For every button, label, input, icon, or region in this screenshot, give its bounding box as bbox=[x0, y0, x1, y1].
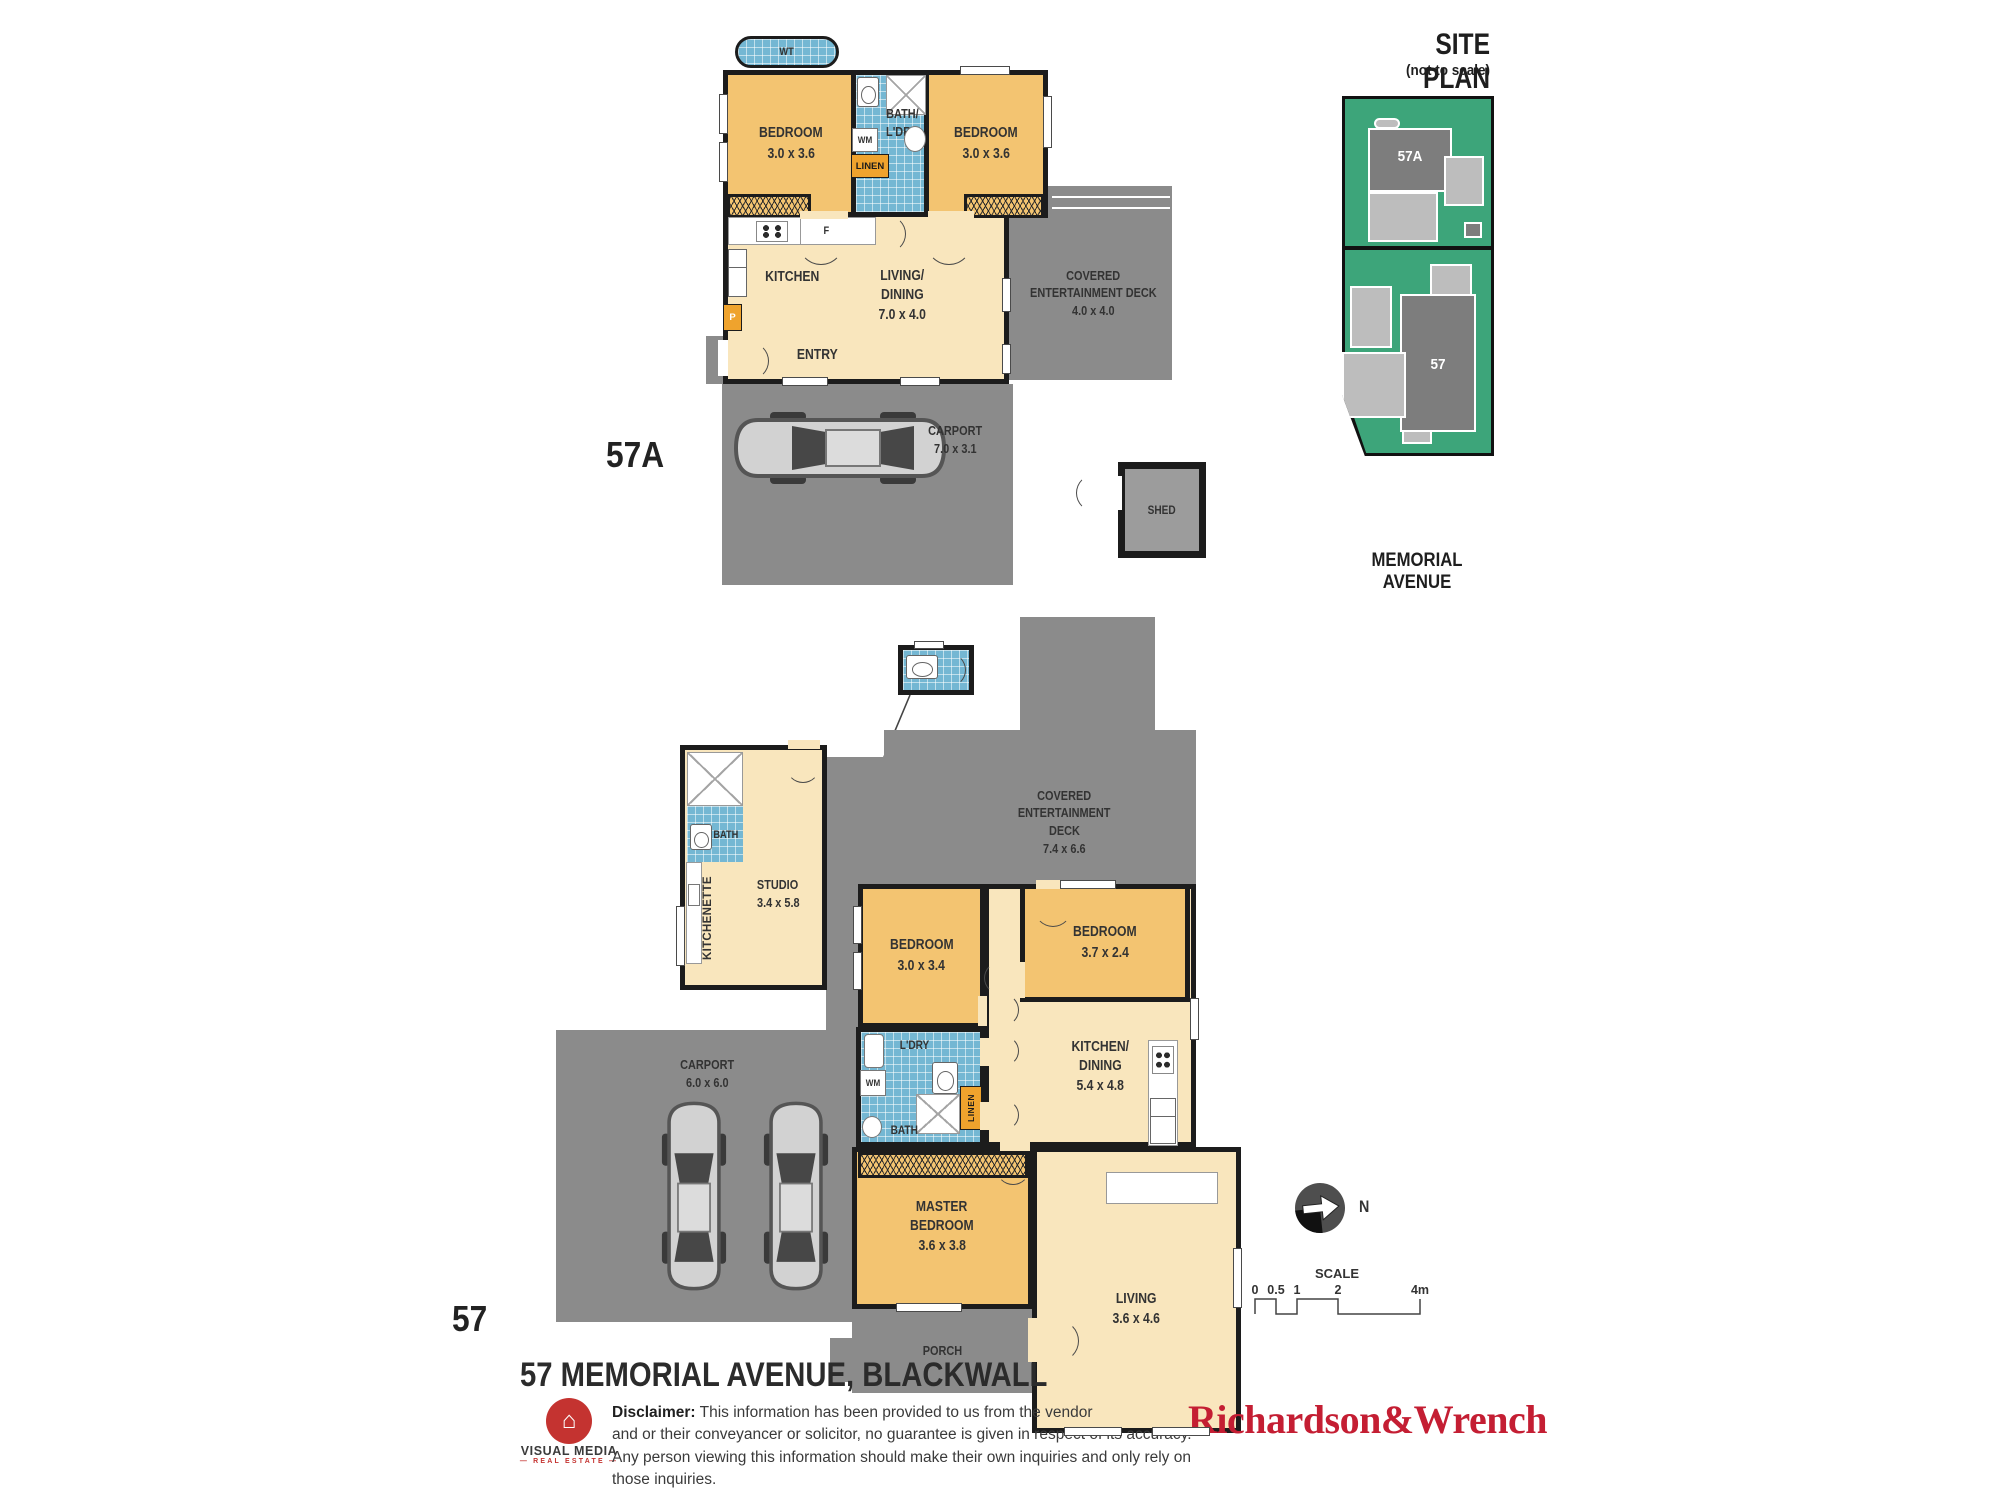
door-arc bbox=[996, 1151, 1030, 1185]
svg-text:SCALE: SCALE bbox=[1315, 1266, 1359, 1281]
door-arc bbox=[926, 219, 972, 265]
site-57-studio bbox=[1350, 286, 1392, 348]
unit-label-57a: 57A bbox=[606, 434, 664, 476]
water-tank-label: WT bbox=[780, 45, 794, 60]
pantry-unit-icon bbox=[728, 249, 747, 297]
window bbox=[719, 142, 728, 182]
deck-window bbox=[1002, 344, 1011, 374]
svg-text:2: 2 bbox=[1335, 1283, 1342, 1297]
street-label: MEMORIAL AVENUE bbox=[1346, 550, 1489, 594]
deck-label-57a: COVERED ENTERTAINMENT DECK 4.0 x 4.0 bbox=[1032, 262, 1154, 324]
deck-57-side bbox=[826, 757, 884, 884]
window bbox=[1043, 96, 1052, 148]
washing-machine-icon: WM bbox=[852, 128, 878, 152]
window bbox=[1233, 1248, 1242, 1308]
kitchenette-label: KITCHENETTE bbox=[702, 868, 714, 968]
visual-media-tagline: REAL ESTATE bbox=[516, 1458, 622, 1465]
site-57-carport bbox=[1342, 352, 1406, 418]
kitchen-peninsula-bench bbox=[1106, 1172, 1218, 1204]
cooktop-icon bbox=[756, 221, 788, 242]
north-label: N bbox=[1359, 1196, 1369, 1219]
deck-door-gap bbox=[1002, 278, 1011, 312]
site-lot-a-label: 57A bbox=[1390, 148, 1430, 165]
laundry-label: L'DRY bbox=[890, 1036, 940, 1054]
door-arc bbox=[984, 962, 1016, 994]
shower-icon bbox=[687, 752, 743, 806]
water-tank: WT bbox=[735, 36, 839, 68]
deck-label-57: COVERED ENTERTAINMENT DECK 7.4 x 6.6 bbox=[1005, 778, 1123, 866]
door-arc bbox=[868, 215, 906, 253]
door-gap bbox=[788, 740, 820, 749]
window bbox=[896, 1303, 962, 1312]
disclaimer-text: Disclaimer: This information has been pr… bbox=[612, 1402, 1202, 1492]
door-gap bbox=[1000, 1142, 1030, 1151]
site-lot-b-label: 57 bbox=[1422, 356, 1454, 373]
window bbox=[853, 906, 862, 944]
shed: SHED bbox=[1118, 462, 1206, 558]
porch-label: PORCH bbox=[910, 1342, 974, 1360]
shed-door-arc bbox=[1076, 474, 1114, 512]
visual-media-name: VISUAL MEDIA bbox=[516, 1444, 622, 1458]
window bbox=[853, 952, 862, 990]
studio-label: STUDIO 3.4 x 5.8 bbox=[742, 872, 814, 916]
window bbox=[782, 377, 828, 386]
door-arc bbox=[932, 653, 966, 687]
entry-door-gap bbox=[718, 340, 728, 376]
site-plan-lots: 57A 57 bbox=[1342, 96, 1494, 456]
kitchenette-bench bbox=[686, 862, 702, 964]
door-gap bbox=[928, 211, 974, 219]
car-icon bbox=[652, 1098, 736, 1294]
entry-door-arc bbox=[731, 342, 769, 380]
window bbox=[719, 94, 728, 134]
scale-bar: SCALE 0 0.5 1 2 4m bbox=[1240, 1262, 1440, 1322]
carport-label-57: CARPORT 6.0 x 6.0 bbox=[664, 1052, 750, 1096]
door-gap bbox=[800, 211, 848, 219]
kitchen-dining-label: KITCHEN/ DINING 5.4 x 4.8 bbox=[1040, 1034, 1160, 1100]
north-arrow-icon bbox=[1291, 1179, 1348, 1236]
window bbox=[1152, 1427, 1210, 1436]
door-arc bbox=[989, 1036, 1019, 1066]
disclaimer-label: Disclaimer: bbox=[612, 1404, 696, 1421]
visual-media-logo: ⌂ VISUAL MEDIA REAL ESTATE bbox=[516, 1398, 622, 1465]
window bbox=[676, 906, 685, 966]
agency-logo: Richardson&Wrench bbox=[1188, 1396, 1547, 1443]
svg-text:0: 0 bbox=[1252, 1283, 1259, 1297]
car-icon bbox=[754, 1098, 838, 1294]
window bbox=[1060, 880, 1116, 889]
toilet-icon bbox=[932, 1062, 958, 1094]
sink-icon bbox=[688, 884, 700, 906]
room-dims: 3.0 x 3.6 bbox=[962, 145, 1009, 165]
linen-cabinet: LINEN bbox=[960, 1086, 982, 1130]
site-57a-shed bbox=[1464, 222, 1482, 238]
living-label: LIVING 3.6 x 4.6 bbox=[1098, 1288, 1174, 1332]
cooktop-icon bbox=[1152, 1046, 1174, 1074]
entry-label: ENTRY bbox=[780, 346, 854, 366]
washing-machine-icon: WM bbox=[860, 1070, 886, 1096]
site-57-porch bbox=[1402, 430, 1432, 444]
room-dims: 3.0 x 3.6 bbox=[767, 145, 814, 165]
address-title: 57 MEMORIAL AVENUE, BLACKWALL bbox=[520, 1356, 1047, 1395]
door-arc bbox=[987, 994, 1019, 1026]
unit-label-57: 57 bbox=[452, 1298, 487, 1340]
linen-cabinet: LINEN bbox=[851, 154, 889, 178]
lot-divider bbox=[1342, 246, 1494, 250]
laundry-tub-icon bbox=[864, 1034, 884, 1068]
svg-text:0.5: 0.5 bbox=[1267, 1283, 1284, 1297]
door-gap bbox=[980, 1102, 989, 1130]
window bbox=[1190, 998, 1199, 1040]
carport-label-57a: CARPORT 7.0 x 3.1 bbox=[906, 418, 1004, 462]
robe-icon bbox=[964, 194, 1044, 218]
bedroom1-57: BEDROOM 3.0 x 3.4 bbox=[858, 884, 985, 1028]
door-gap bbox=[980, 1038, 989, 1066]
kitchen-label: KITCHEN bbox=[748, 268, 836, 288]
window bbox=[900, 377, 940, 386]
floorplan-page: WT BEDROOM 3.0 x 3.6 BEDROOM 3.0 x 3.6 B… bbox=[0, 0, 2000, 1500]
front-door-gap bbox=[1028, 1318, 1037, 1362]
door-arc bbox=[989, 1100, 1019, 1130]
window bbox=[914, 641, 944, 649]
master-label: MASTER BEDROOM 3.6 x 3.8 bbox=[884, 1194, 1000, 1260]
site-57a-carport bbox=[1368, 192, 1438, 242]
deck-roof-strip-57a bbox=[1048, 186, 1172, 222]
front-door-arc bbox=[1037, 1320, 1079, 1362]
fridge-icon bbox=[1150, 1098, 1176, 1144]
door-arc bbox=[798, 219, 844, 265]
window bbox=[1064, 1427, 1122, 1436]
deck-57-upper bbox=[1020, 617, 1155, 735]
toilet-icon bbox=[857, 77, 879, 107]
deck-roof-line bbox=[1052, 196, 1170, 198]
robe-icon bbox=[727, 194, 811, 218]
deck-roof-line bbox=[1052, 207, 1170, 209]
door-gap bbox=[1016, 962, 1025, 998]
door-arc bbox=[786, 749, 820, 783]
basin-icon bbox=[862, 1116, 882, 1138]
svg-text:4m: 4m bbox=[1411, 1283, 1429, 1297]
window bbox=[960, 66, 1010, 75]
svg-text:1: 1 bbox=[1294, 1283, 1301, 1297]
room-label: BEDROOM bbox=[759, 124, 823, 144]
room-label: BEDROOM bbox=[954, 124, 1018, 144]
pantry-cabinet: P bbox=[723, 304, 742, 331]
bath-label: BATH bbox=[884, 1122, 924, 1138]
site-plan-subtitle: (not to scale) bbox=[1359, 62, 1490, 79]
basin-icon bbox=[904, 126, 926, 152]
door-arc bbox=[1034, 889, 1072, 927]
visual-media-logo-icon: ⌂ bbox=[546, 1398, 592, 1444]
studio-bath-label: BATH bbox=[706, 826, 746, 844]
site-57a-deck bbox=[1444, 156, 1484, 206]
door-gap bbox=[978, 996, 987, 1026]
living-dining-label: LIVING/ DINING 7.0 x 4.0 bbox=[850, 264, 954, 328]
